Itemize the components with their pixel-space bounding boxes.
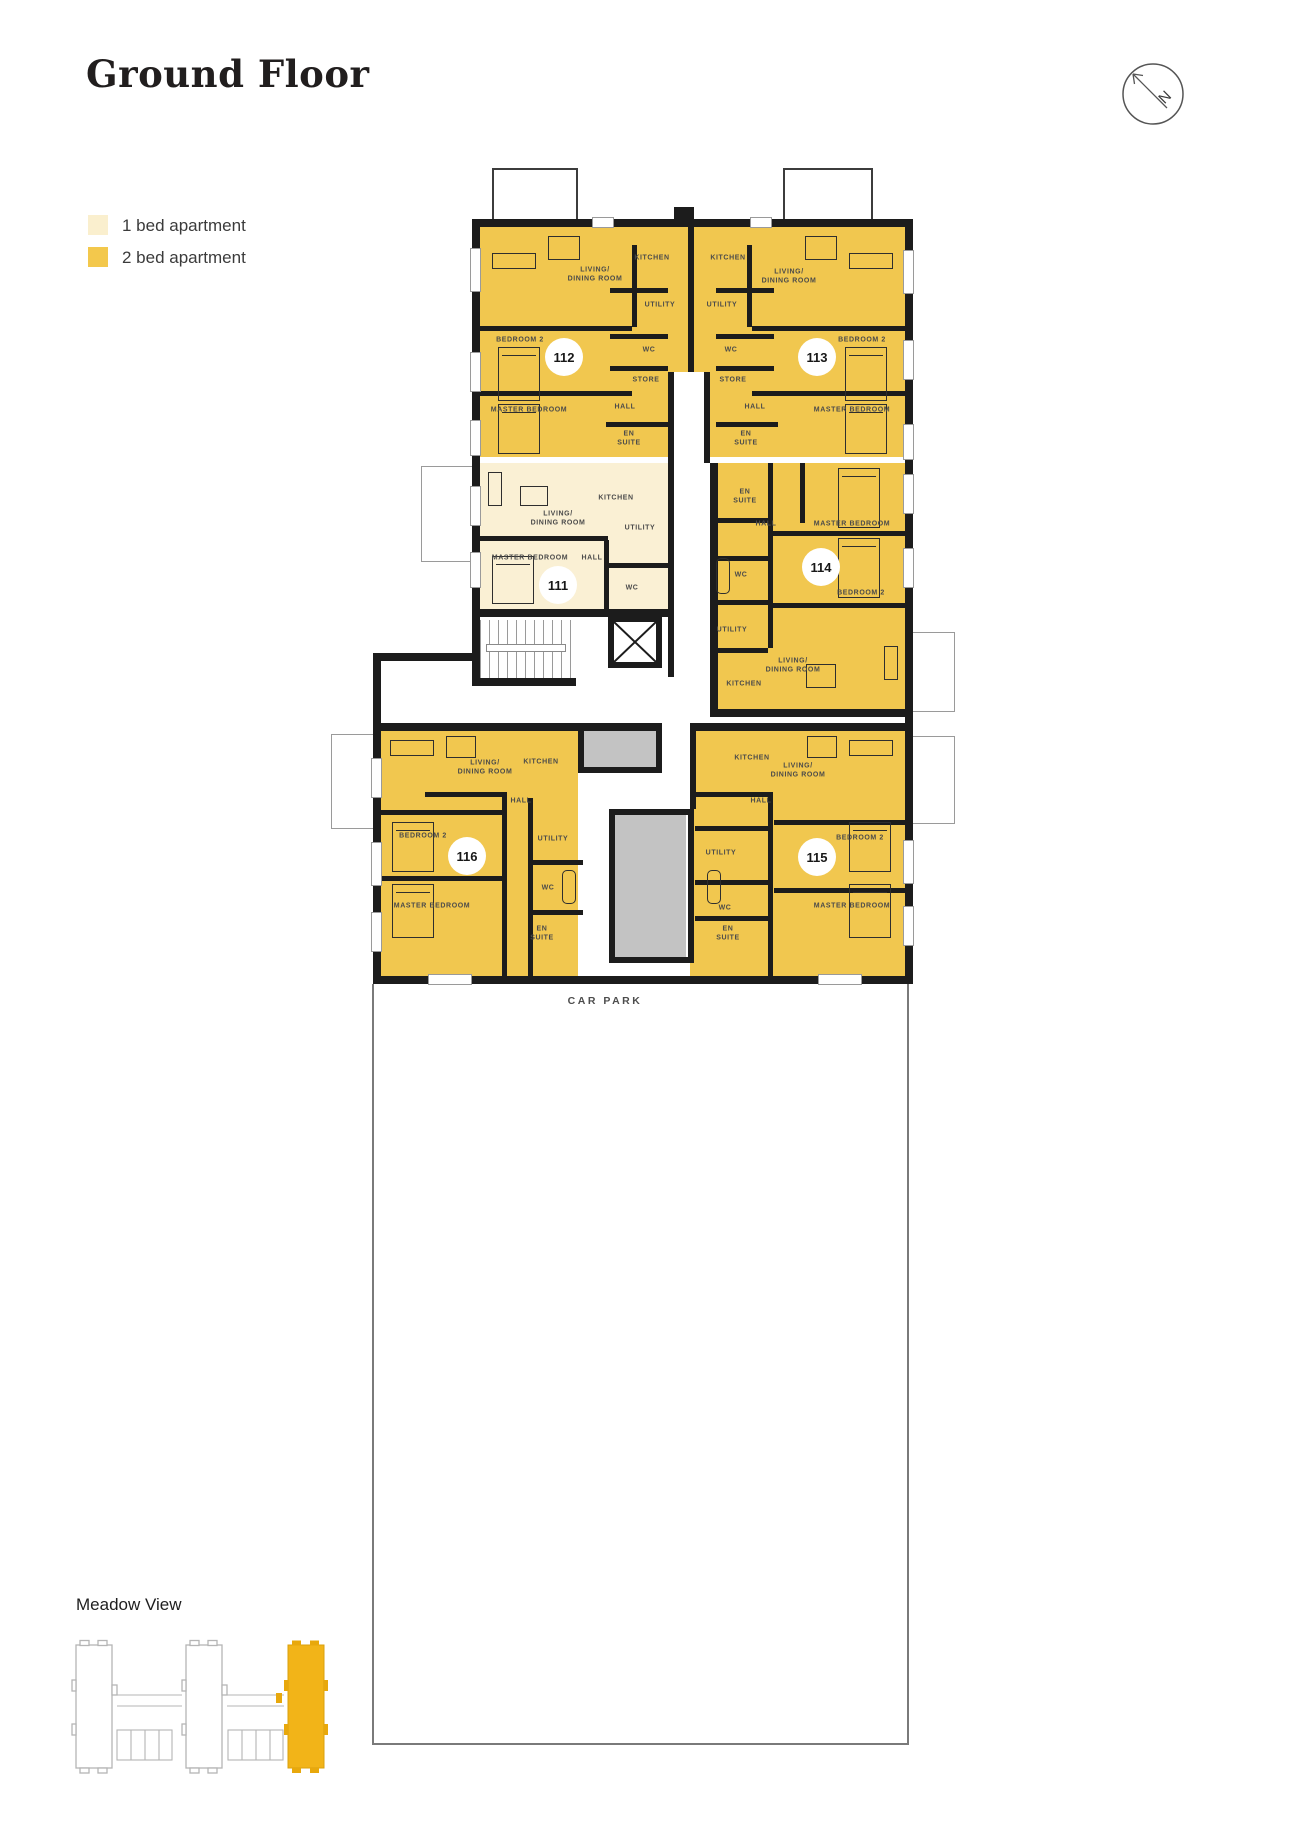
room-label-kitchen: KITCHEN xyxy=(598,493,633,502)
room-label-wc: WC xyxy=(542,883,555,892)
room-label-living: LIVING/ DINING ROOM xyxy=(568,266,623,285)
unit-number-115: 115 xyxy=(798,838,836,876)
dining-table-icon xyxy=(446,736,476,758)
siteplan-title: Meadow View xyxy=(76,1595,182,1615)
sofa-icon xyxy=(849,740,893,756)
room-label-bedroom2: BEDROOM 2 xyxy=(399,831,447,840)
room-label-hall: HALL xyxy=(755,519,776,528)
bed-icon xyxy=(845,347,887,401)
wall xyxy=(773,603,905,608)
wall xyxy=(704,372,710,463)
wall xyxy=(472,678,576,686)
room-label-hall: HALL xyxy=(744,402,765,411)
window xyxy=(592,217,614,228)
wall xyxy=(610,334,668,339)
bathtub-icon xyxy=(716,558,730,594)
room-label-utility: UTILITY xyxy=(625,523,656,532)
room-label-store: STORE xyxy=(633,375,660,384)
room-label-bedroom2: BEDROOM 2 xyxy=(838,335,886,344)
car-park-area xyxy=(372,984,909,1745)
room-label-wc: WC xyxy=(719,903,732,912)
wall xyxy=(747,245,752,327)
wall xyxy=(688,809,694,963)
wall xyxy=(604,563,668,568)
room-label-wc: WC xyxy=(725,345,738,354)
unit-number-112: 112 xyxy=(545,338,583,376)
siteplan-block xyxy=(72,1641,117,1774)
bathtub-icon xyxy=(562,870,576,904)
window xyxy=(903,250,914,294)
balcony xyxy=(783,168,873,221)
wall xyxy=(425,792,507,797)
room-label-kitchen: KITCHEN xyxy=(726,679,761,688)
wall xyxy=(578,767,662,773)
room-label-hall: HALL xyxy=(614,402,635,411)
wall xyxy=(609,809,694,815)
siteplan-block-highlighted xyxy=(276,1641,328,1774)
wall xyxy=(768,463,773,648)
car-park-label: CAR PARK xyxy=(568,995,643,1007)
wall xyxy=(688,227,694,372)
room-label-store: STORE xyxy=(720,375,747,384)
room-label-bedroom2: BEDROOM 2 xyxy=(496,335,544,344)
room-label-wc: WC xyxy=(626,583,639,592)
room-label-en-suite: EN SUITE xyxy=(733,488,757,507)
wall xyxy=(773,531,905,536)
window xyxy=(371,912,382,952)
page-title: Ground Floor xyxy=(86,52,370,96)
room-label-master: MASTER BEDROOM xyxy=(492,553,568,562)
legend-label-2bed: 2 bed apartment xyxy=(122,248,246,268)
bed-icon xyxy=(849,822,891,872)
sofa-icon xyxy=(849,253,893,269)
window xyxy=(470,420,481,456)
room-label-kitchen: KITCHEN xyxy=(710,253,745,262)
room-label-master: MASTER BEDROOM xyxy=(814,405,890,414)
room-label-living: LIVING/ DINING ROOM xyxy=(766,657,821,676)
wall xyxy=(695,916,768,921)
balcony xyxy=(911,632,955,712)
room-label-utility: UTILITY xyxy=(717,625,748,634)
room-label-master: MASTER BEDROOM xyxy=(491,405,567,414)
dining-table-icon xyxy=(805,236,837,260)
window xyxy=(470,552,481,588)
room-label-kitchen: KITCHEN xyxy=(734,753,769,762)
compass-north-label: N xyxy=(1155,88,1175,108)
wall xyxy=(609,809,615,963)
room-label-master: MASTER BEDROOM xyxy=(814,901,890,910)
wall xyxy=(502,792,507,976)
dining-table-icon xyxy=(548,236,580,260)
room-label-living: LIVING/ DINING ROOM xyxy=(458,759,513,778)
bed-icon xyxy=(492,556,534,604)
wall xyxy=(528,798,533,976)
bed-icon xyxy=(849,884,891,938)
sofa-icon xyxy=(884,646,898,680)
wall xyxy=(690,723,696,809)
window xyxy=(371,842,382,886)
wall xyxy=(800,463,805,523)
wall xyxy=(528,910,583,915)
dining-table-icon xyxy=(520,486,548,506)
room-label-wc: WC xyxy=(643,345,656,354)
window xyxy=(903,906,914,946)
room-label-hall: HALL xyxy=(750,796,771,805)
unit-number-111: 111 xyxy=(539,566,577,604)
room-label-wc: WC xyxy=(735,570,748,579)
room-label-en-suite: EN SUITE xyxy=(617,430,641,449)
wall xyxy=(674,207,694,219)
wall xyxy=(373,653,480,661)
bathtub-icon xyxy=(707,870,721,904)
room-label-hall: HALL xyxy=(581,553,602,562)
sofa-icon xyxy=(390,740,434,756)
bed-icon xyxy=(392,884,434,938)
room-label-bedroom2: BEDROOM 2 xyxy=(836,833,884,842)
window xyxy=(903,474,914,514)
wall xyxy=(710,709,913,717)
dining-table-icon xyxy=(807,736,837,758)
wall xyxy=(381,876,507,881)
room-label-kitchen: KITCHEN xyxy=(523,757,558,766)
wall xyxy=(373,723,913,731)
legend-label-1bed: 1 bed apartment xyxy=(122,216,246,236)
room-label-living: LIVING/ DINING ROOM xyxy=(762,268,817,287)
siteplan-map xyxy=(70,1638,340,1798)
wall xyxy=(480,536,608,541)
legend-swatch-1bed xyxy=(88,215,108,235)
room-label-hall: HALL xyxy=(510,796,531,805)
window xyxy=(903,548,914,588)
window xyxy=(903,424,914,460)
wall xyxy=(752,326,905,331)
north-compass: N xyxy=(1115,56,1193,134)
wall xyxy=(606,422,668,427)
door-opening xyxy=(662,723,690,731)
bed-icon xyxy=(498,347,540,401)
lift-shaft xyxy=(608,616,662,668)
sofa-icon xyxy=(492,253,536,269)
wall xyxy=(768,792,773,976)
wall xyxy=(656,723,662,773)
unit-number-114: 114 xyxy=(802,548,840,586)
window xyxy=(470,352,481,392)
wall xyxy=(668,372,674,677)
room-label-living: LIVING/ DINING ROOM xyxy=(771,762,826,781)
window xyxy=(750,217,772,228)
bed-icon xyxy=(392,822,434,872)
room-label-en-suite: EN SUITE xyxy=(734,430,758,449)
sofa-icon xyxy=(488,472,502,506)
wall xyxy=(528,860,583,865)
wall xyxy=(610,288,668,293)
window xyxy=(470,486,481,526)
window xyxy=(371,758,382,798)
communal-core-area xyxy=(615,813,686,963)
unit-number-113: 113 xyxy=(798,338,836,376)
wall xyxy=(714,600,768,605)
wall xyxy=(604,540,609,609)
room-label-utility: UTILITY xyxy=(707,300,738,309)
wall xyxy=(695,880,768,885)
stair-handrail xyxy=(486,644,566,652)
wall xyxy=(610,366,668,371)
room-label-utility: UTILITY xyxy=(706,848,737,857)
wall xyxy=(578,723,584,773)
wall xyxy=(716,366,774,371)
wall xyxy=(381,810,507,815)
room-label-living: LIVING/ DINING ROOM xyxy=(531,510,586,529)
wall xyxy=(716,288,774,293)
window xyxy=(903,840,914,884)
window xyxy=(470,248,481,292)
siteplan-block xyxy=(182,1641,227,1774)
unit-number-116: 116 xyxy=(448,837,486,875)
wall xyxy=(480,326,632,331)
legend-swatch-2bed xyxy=(88,247,108,267)
floorplan-page: Ground Floor N 1 bed apartment 2 bed apa… xyxy=(0,0,1304,1845)
room-label-utility: UTILITY xyxy=(538,834,569,843)
balcony xyxy=(492,168,578,221)
lift-cross-icon xyxy=(614,622,656,662)
room-label-kitchen: KITCHEN xyxy=(634,253,669,262)
room-label-bedroom2: BEDROOM 2 xyxy=(837,588,885,597)
balcony xyxy=(421,466,474,562)
room-label-en-suite: EN SUITE xyxy=(716,925,740,944)
wall xyxy=(716,422,778,427)
balcony xyxy=(331,734,375,829)
room-label-master: MASTER BEDROOM xyxy=(394,901,470,910)
wall xyxy=(716,334,774,339)
wall xyxy=(714,648,768,653)
room-label-master: MASTER BEDROOM xyxy=(814,519,890,528)
wall xyxy=(609,957,694,963)
entrance-lobby-area xyxy=(584,731,656,769)
room-label-en-suite: EN SUITE xyxy=(530,925,554,944)
window xyxy=(903,340,914,380)
balcony xyxy=(911,736,955,824)
wall xyxy=(695,826,768,831)
room-label-utility: UTILITY xyxy=(645,300,676,309)
wall xyxy=(472,219,913,227)
